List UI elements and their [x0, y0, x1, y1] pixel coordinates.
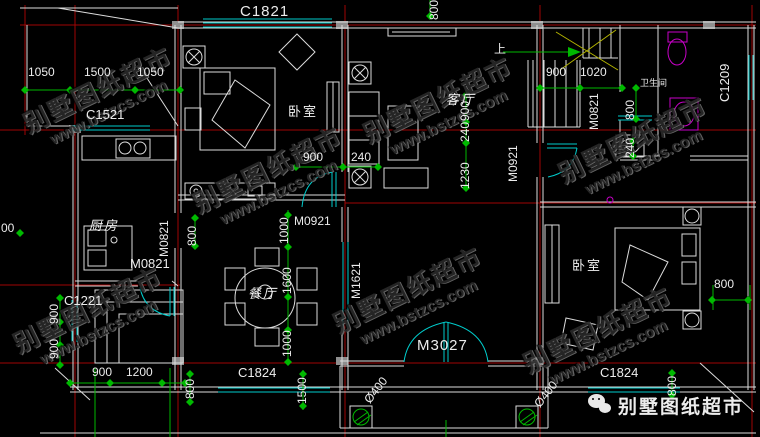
dim-partial: 00: [1, 222, 14, 235]
eave-diagonal: [145, 75, 178, 126]
quilt-icon: [622, 245, 668, 300]
chair-icon: [225, 303, 245, 325]
dim-900: 900: [546, 66, 566, 79]
basin-icon: [674, 102, 694, 126]
footer-brand: 别墅图纸超市: [618, 392, 744, 419]
sink-tap-icon: [111, 237, 117, 243]
chair-icon: [279, 34, 315, 70]
dim-tick: [191, 214, 199, 222]
dim-tick: [186, 370, 194, 378]
exterior-steps: [119, 314, 183, 363]
column-hatch: [354, 412, 368, 422]
window-label-c1221: C1221: [64, 294, 102, 307]
room-label-bedroom-top: 卧室: [288, 105, 318, 118]
dim-tick: [284, 358, 292, 366]
dim-240: 240: [459, 122, 472, 142]
room-label-dining: 餐厅: [248, 287, 281, 300]
window-label-c1521: C1521: [86, 108, 124, 121]
dim-1050: 1050: [137, 66, 164, 79]
dim-tick: [56, 294, 64, 302]
chair-icon: [297, 303, 317, 325]
dim-tick: [708, 296, 716, 304]
desk-icon: [561, 318, 598, 350]
dim-1230: 1230: [459, 162, 472, 189]
dim-800: 800: [714, 278, 734, 291]
door-label-m0821-kitchen: M0821: [130, 257, 170, 270]
chair-icon: [255, 248, 279, 266]
dim-tick: [744, 296, 752, 304]
window-label-c1824-left: C1824: [238, 366, 276, 379]
column-hatch: [520, 412, 534, 422]
exterior-steps: [107, 302, 183, 363]
dim-tick: [21, 86, 29, 94]
dim-tick: [186, 398, 194, 406]
ceiling-fan-icon: [683, 207, 701, 225]
dim-1000: 1000: [278, 217, 291, 244]
pillow-icon: [682, 262, 696, 284]
nightstand-icon: [185, 108, 201, 130]
dim-900: 900: [48, 304, 61, 324]
dim-tick: [284, 243, 292, 251]
dim-1600: 1600: [281, 267, 294, 294]
dim-tick: [632, 84, 640, 92]
dim-900: 900: [48, 339, 61, 359]
dim-800: 800: [186, 226, 199, 246]
door-label-m1621: M1621: [350, 262, 363, 299]
door-label-m0921: M0921: [294, 215, 331, 228]
dim-1020: 1020: [580, 66, 607, 79]
room-label-kitchen: 厨房: [89, 219, 122, 232]
dim-tick: [106, 379, 114, 387]
wechat-icon: [588, 392, 614, 418]
dim-tick: [339, 163, 347, 171]
stair-arrow-head: [568, 47, 581, 57]
door-arc: [548, 148, 577, 177]
floor-plan-screenshot: 别墅图纸超市 www.bstzcs.com 别墅图纸超市 www.bstzcs.…: [0, 0, 760, 437]
door-label-m0921-stair: M0921: [507, 145, 520, 182]
window-label-c1209: C1209: [718, 64, 731, 102]
pillow-icon: [682, 234, 696, 256]
chair-icon: [255, 328, 279, 346]
room-label-bathroom: 卫生间: [640, 77, 667, 90]
stove-icon: [116, 139, 150, 158]
dim-tick: [131, 86, 139, 94]
dim-tick: [66, 86, 74, 94]
wechat-bubble-icon: [599, 403, 611, 413]
column-block: [172, 357, 184, 365]
door-label-m0821-kitchen-side: M0821: [158, 220, 171, 257]
window-label-c1821: C1821: [240, 5, 289, 18]
door-arc: [302, 172, 333, 207]
quilt-icon: [212, 80, 270, 148]
ceiling-fan-icon: [683, 311, 701, 329]
dim-tick: [16, 229, 24, 237]
stove-burner-icon: [119, 142, 131, 154]
stair-direction-label: 上: [494, 43, 506, 56]
chair-icon: [297, 268, 317, 290]
window-label-c1824-right: C1824: [600, 366, 638, 379]
dim-tick: [56, 361, 64, 369]
toilet-icon: [668, 39, 686, 65]
dim-tick: [176, 86, 184, 94]
sofa-icon: [384, 168, 428, 188]
dim-tick: [158, 379, 166, 387]
ceiling-fan-icon: [685, 313, 699, 327]
counter-icon: [82, 136, 176, 160]
dim-800: 800: [428, 0, 441, 20]
pillow-icon: [204, 72, 230, 94]
room-label-bedroom-right: 卧室: [572, 259, 602, 272]
dim-1000: 1000: [281, 330, 294, 357]
dim-900: 900: [92, 366, 112, 379]
dim-240: 240: [351, 151, 371, 164]
dim-1050: 1050: [28, 66, 55, 79]
stove-burner-icon: [134, 142, 146, 154]
dim-240: 240: [624, 138, 637, 158]
door-label-m0821-stair: M0821: [588, 93, 601, 130]
coffee-table-icon: [388, 106, 418, 160]
dim-800: 800: [624, 100, 637, 120]
dim-800: 800: [184, 379, 197, 399]
door-label-m3027: M3027: [417, 339, 468, 352]
dim-900: 900: [459, 101, 472, 121]
dim-tick: [292, 163, 300, 171]
sink-basin-icon: [88, 250, 106, 266]
dim-900: 900: [303, 151, 323, 164]
dim-1500: 1500: [84, 66, 111, 79]
dish-icon: [194, 189, 198, 193]
dim-tick: [618, 84, 626, 92]
toilet-icon: [668, 32, 687, 42]
ceiling-fan-icon: [685, 209, 699, 223]
bed-icon: [615, 228, 700, 310]
bed-icon: [200, 68, 275, 150]
dim-tick: [284, 293, 292, 301]
dim-1200: 1200: [126, 366, 153, 379]
dim-1500: 1500: [296, 377, 309, 404]
